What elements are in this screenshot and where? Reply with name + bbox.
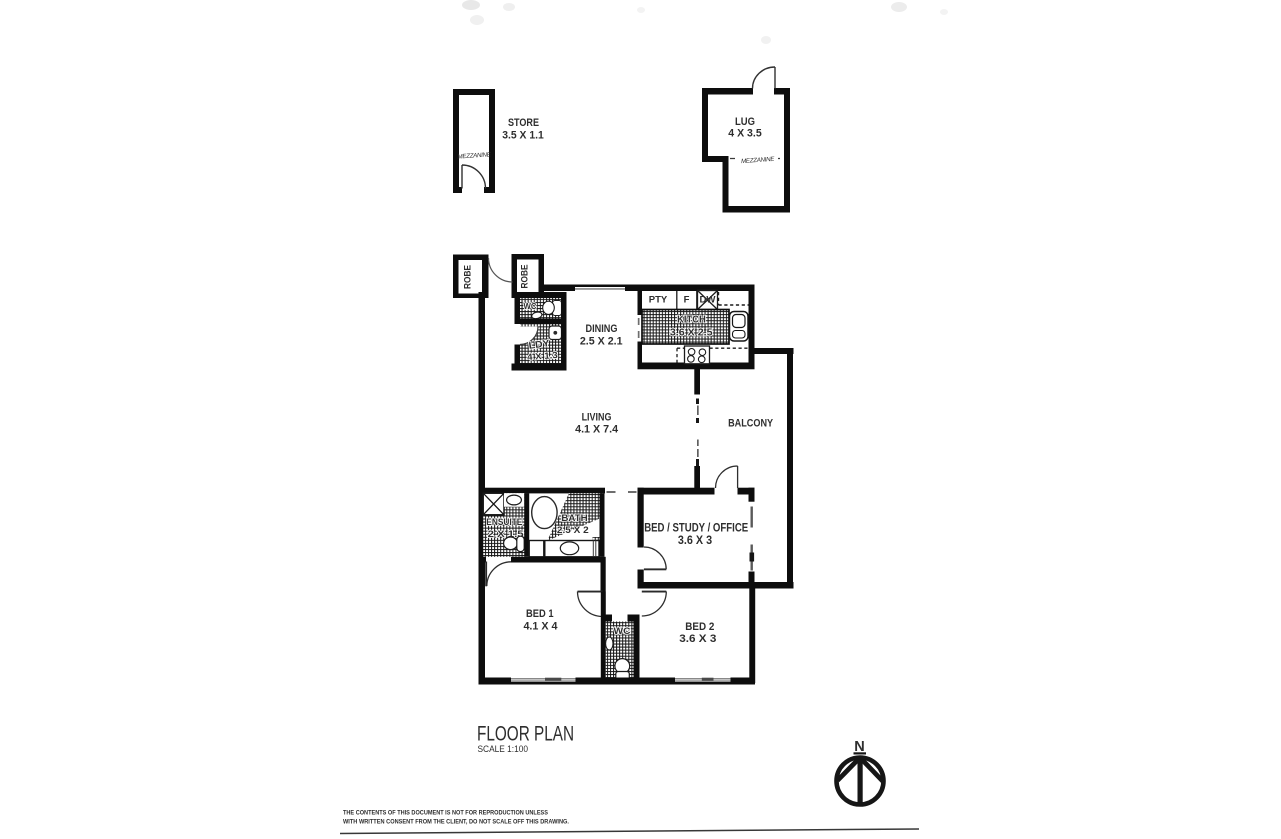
svg-text:WC: WC <box>614 626 631 637</box>
svg-text:PTY: PTY <box>649 295 668 306</box>
svg-text:3.6 X 3: 3.6 X 3 <box>679 633 716 645</box>
svg-text:F: F <box>684 295 690 306</box>
svg-text:4 X 1.3: 4 X 1.3 <box>527 350 558 362</box>
svg-text:2.5 X 2: 2.5 X 2 <box>557 525 589 536</box>
svg-text:3.6 X 2.5: 3.6 X 2.5 <box>670 327 713 339</box>
svg-text:THE CONTENTS OF THIS DOCUMENT: THE CONTENTS OF THIS DOCUMENT IS NOT FOR… <box>343 810 549 817</box>
svg-text:DINING: DINING <box>586 323 618 335</box>
svg-text:LUG: LUG <box>735 116 755 128</box>
svg-text:4.1 X 4: 4.1 X 4 <box>523 621 558 633</box>
svg-text:4 X 3.5: 4 X 3.5 <box>728 128 761 140</box>
svg-text:ROBE: ROBE <box>520 265 530 289</box>
svg-text:BED / STUDY / OFFICE: BED / STUDY / OFFICE <box>644 523 748 535</box>
svg-text:ENSUITE: ENSUITE <box>486 517 522 527</box>
svg-text:WITH WRITTEN CONSENT FROM THE: WITH WRITTEN CONSENT FROM THE CLIENT, DO… <box>343 819 569 826</box>
svg-text:3.5 X 1.1: 3.5 X 1.1 <box>502 130 544 142</box>
svg-text:BALCONY: BALCONY <box>728 417 774 429</box>
svg-text:KITCH: KITCH <box>677 314 706 326</box>
svg-text:BED 1: BED 1 <box>526 608 554 620</box>
svg-text:ROBE: ROBE <box>463 265 473 289</box>
svg-text:SCALE 1:100: SCALE 1:100 <box>478 744 529 754</box>
svg-text:MEZZANINE: MEZZANINE <box>457 151 492 160</box>
svg-text:2.5 X 2.1: 2.5 X 2.1 <box>580 336 623 348</box>
svg-text:DW: DW <box>700 295 716 306</box>
svg-text:4.1 X 7.4: 4.1 X 7.4 <box>575 424 619 436</box>
svg-text:FLOOR PLAN: FLOOR PLAN <box>477 722 574 746</box>
svg-text:3.6 X 3: 3.6 X 3 <box>678 535 712 547</box>
svg-text:BATH: BATH <box>561 513 587 524</box>
svg-text:WC: WC <box>524 301 537 311</box>
svg-text:STORE: STORE <box>508 117 539 129</box>
svg-text:BED 2: BED 2 <box>685 621 714 633</box>
svg-text:LIVING: LIVING <box>582 411 612 423</box>
